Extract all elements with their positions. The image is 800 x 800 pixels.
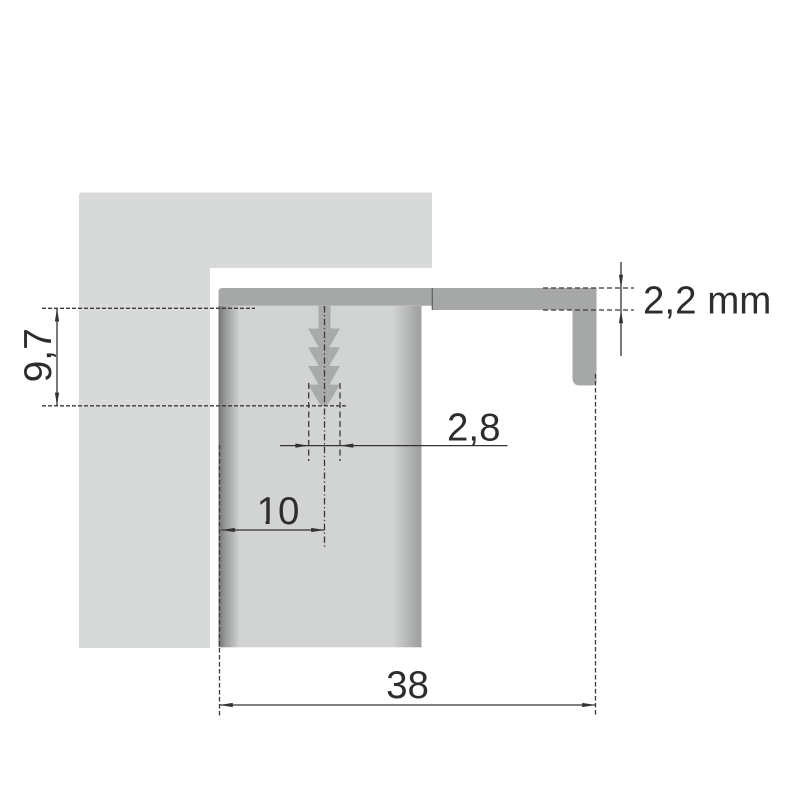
svg-text:2,2 mm: 2,2 mm	[643, 280, 771, 323]
svg-text:10: 10	[257, 490, 300, 533]
svg-text:2,8: 2,8	[447, 407, 501, 450]
svg-text:38: 38	[386, 664, 429, 707]
svg-text:9,7: 9,7	[17, 328, 60, 382]
